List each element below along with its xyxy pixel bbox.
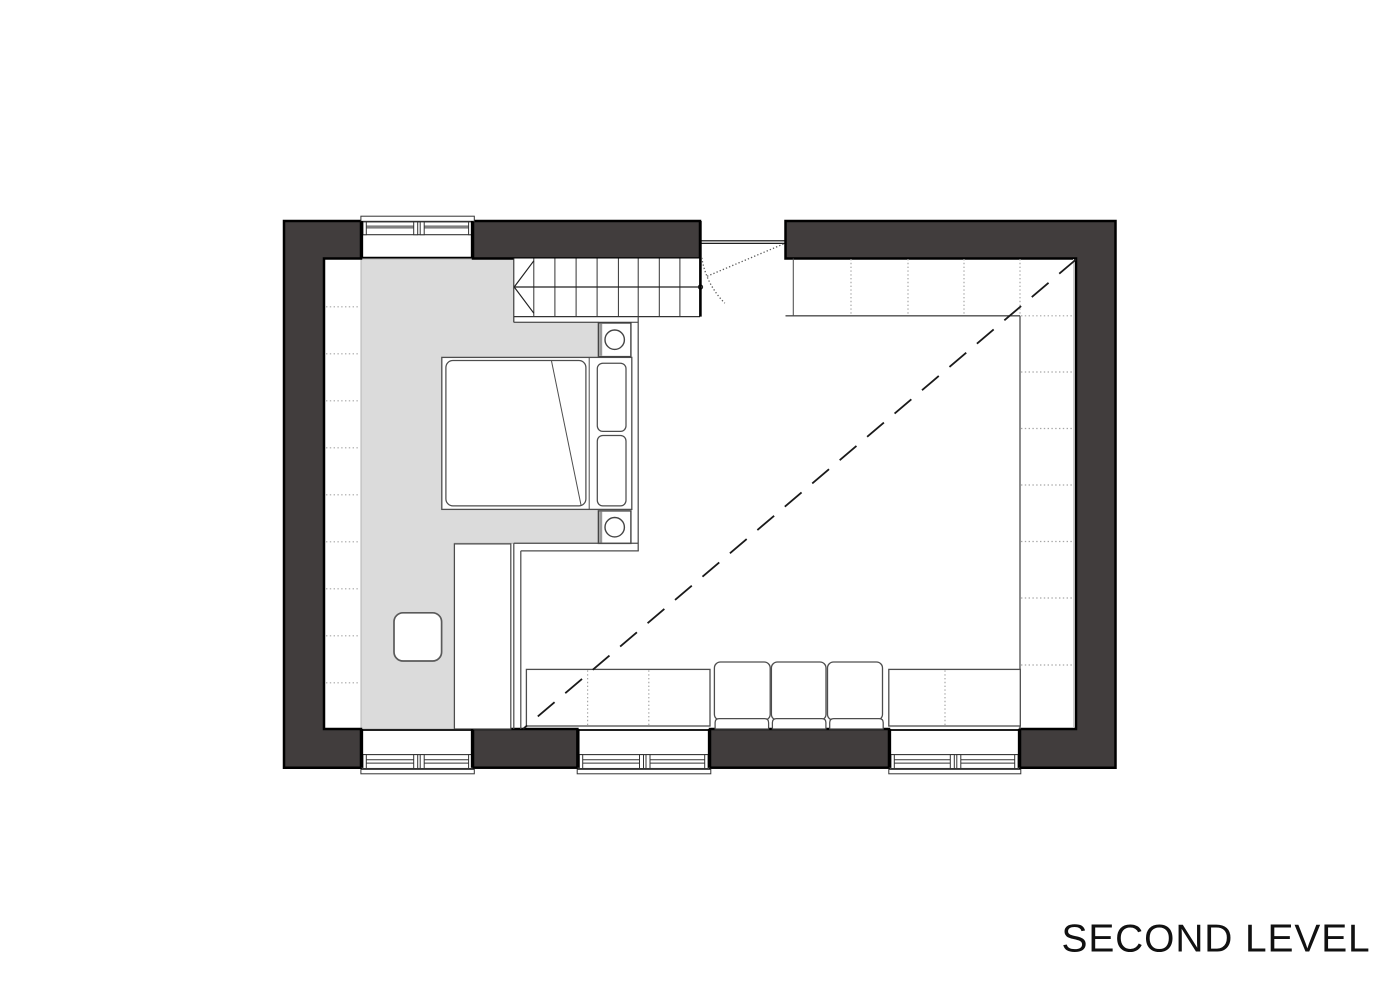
svg-text:SECOND LEVEL: SECOND LEVEL [1062,918,1371,961]
